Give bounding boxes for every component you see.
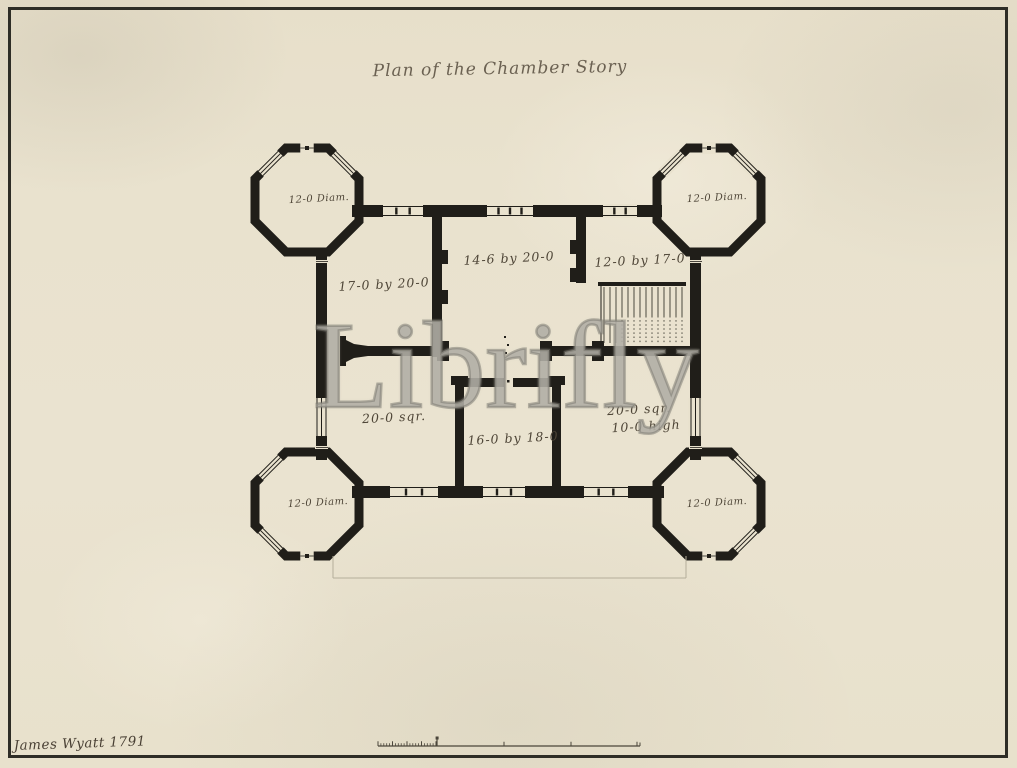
terrace-outline xyxy=(333,556,686,578)
scale-bar xyxy=(378,737,640,747)
watermark: Librifly xyxy=(313,295,699,437)
drawing-sheet: Plan of the Chamber Story 12-0 Diam. 12-… xyxy=(0,0,1017,768)
